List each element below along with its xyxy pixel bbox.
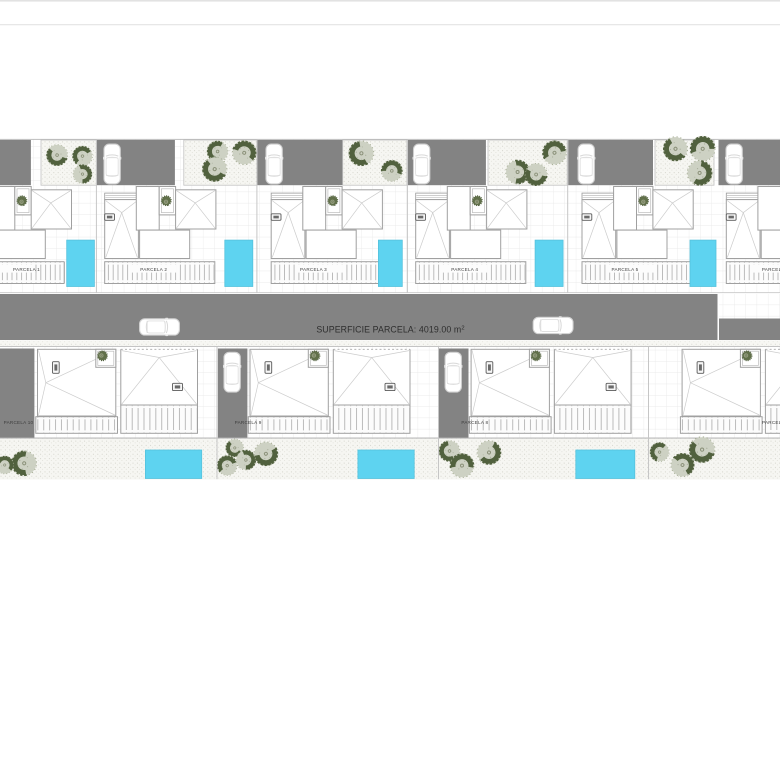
svg-text:SUPERFICIE PARCELA: 4019.00 m2: SUPERFICIE PARCELA: 4019.00 m2 [316,324,464,334]
svg-text:PARCELA 9: PARCELA 9 [235,420,262,425]
svg-text:PARCELA 7: PARCELA 7 [762,420,780,425]
svg-text:PARCELA 4: PARCELA 4 [451,267,478,272]
svg-text:PARCELA 1: PARCELA 1 [13,267,40,272]
svg-text:PARCELA 8: PARCELA 8 [461,420,488,425]
svg-text:PARCELA 5: PARCELA 5 [612,267,639,272]
svg-text:PARCELA 10: PARCELA 10 [4,420,34,425]
svg-text:PARCELA 3: PARCELA 3 [300,267,327,272]
svg-text:PARCELA 2: PARCELA 2 [140,267,167,272]
svg-text:PARCELA 6: PARCELA 6 [762,267,780,272]
